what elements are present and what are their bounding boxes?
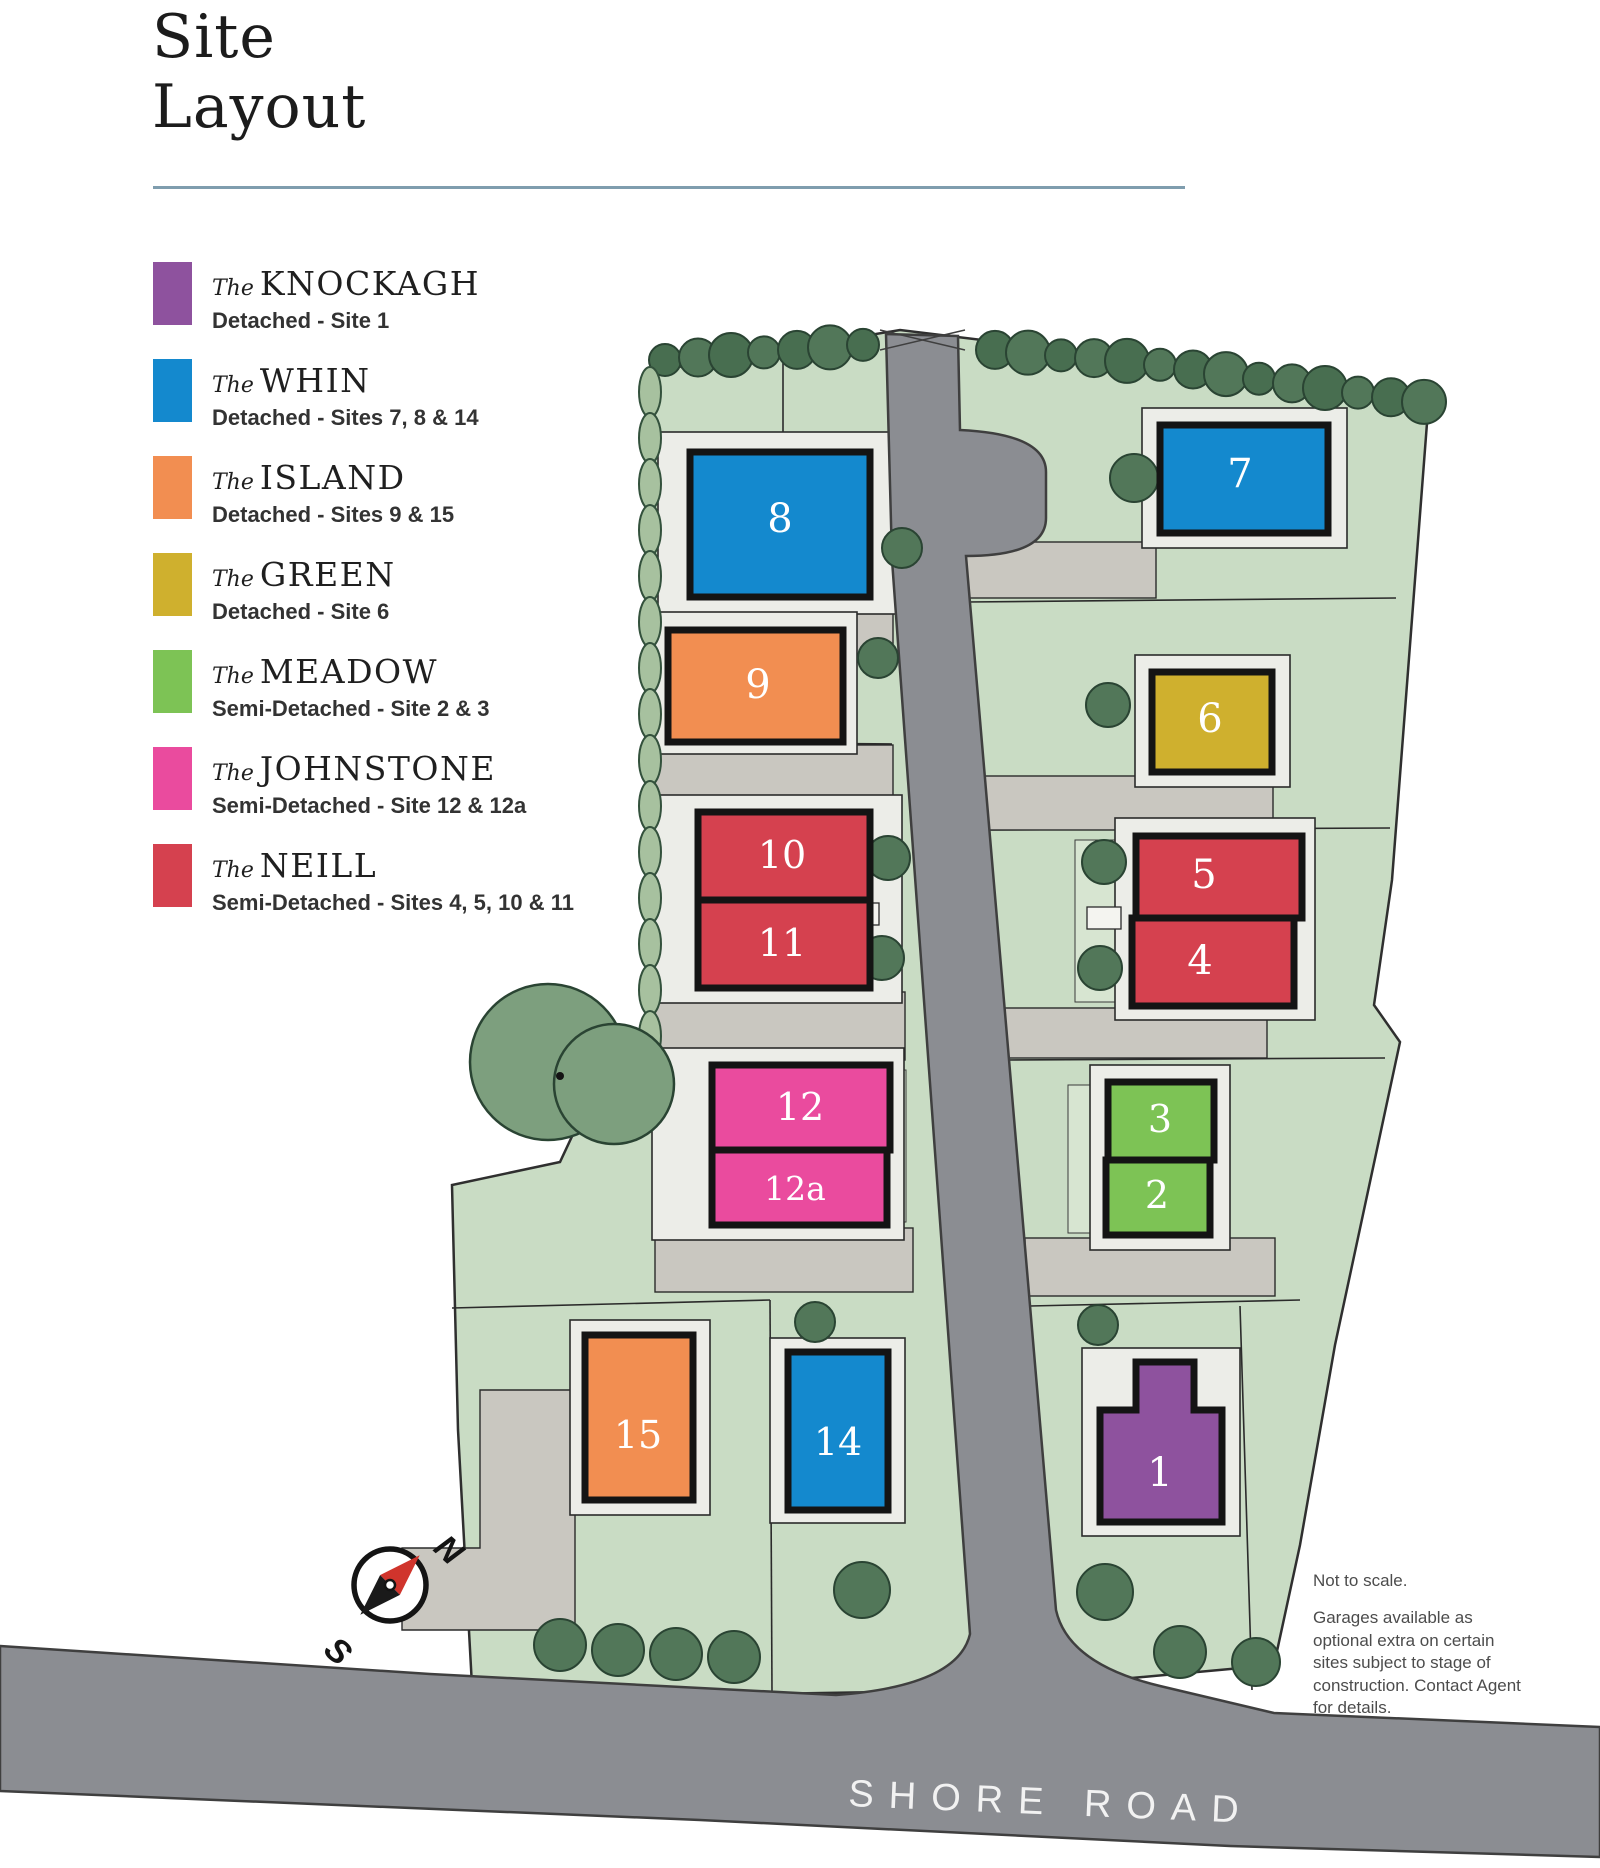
whin-color-swatch — [153, 359, 192, 422]
neill-color-swatch — [153, 844, 192, 907]
hedge-bush — [639, 873, 661, 923]
house-type-sites: Semi-Detached - Site 12 & 12a — [212, 793, 526, 819]
site-number-9: 9 — [745, 662, 770, 708]
tree — [592, 1624, 644, 1676]
hedge-bush — [639, 551, 661, 601]
tree — [1243, 363, 1275, 395]
house-type-name: TheGREEN — [212, 555, 396, 594]
site-number-10: 10 — [758, 833, 806, 877]
site-number-11: 11 — [758, 921, 806, 965]
legend-item-green: TheGREENDetached - Site 6 — [153, 553, 583, 616]
legend: TheKNOCKAGHDetached - Site 1TheWHINDetac… — [153, 262, 583, 941]
not-to-scale-note: Not to scale. — [1313, 1570, 1523, 1592]
tree — [847, 329, 879, 361]
hedge-bush — [639, 459, 661, 509]
legend-item-whin: TheWHINDetached - Sites 7, 8 & 14 — [153, 359, 583, 422]
legend-item-neill: TheNEILLSemi-Detached - Sites 4, 5, 10 &… — [153, 844, 583, 907]
house-site-5 — [1136, 836, 1302, 918]
tree — [795, 1302, 835, 1342]
site-number-3: 3 — [1148, 1097, 1172, 1141]
garage-note: Garages available as optional extra on c… — [1313, 1607, 1523, 1719]
tree — [808, 325, 852, 369]
tree — [1303, 366, 1347, 410]
site-layout-page: 87961011541212a3215141 SHORE ROAD N S Si… — [0, 0, 1600, 1868]
hedge-bush — [639, 505, 661, 555]
house-type-sites: Semi-Detached - Site 2 & 3 — [212, 696, 490, 722]
meadow-color-swatch — [153, 650, 192, 713]
page-title: Site Layout — [152, 2, 452, 142]
house-type-sites: Detached - Site 6 — [212, 599, 396, 625]
site-number-4: 4 — [1187, 938, 1212, 984]
hedge-bush — [639, 965, 661, 1015]
green-color-swatch — [153, 553, 192, 616]
tree — [882, 528, 922, 568]
site-number-14: 14 — [814, 1420, 862, 1464]
house-type-name: TheKNOCKAGH — [212, 264, 480, 303]
tree — [1402, 380, 1446, 424]
hedge-bush — [639, 689, 661, 739]
tree — [1342, 377, 1374, 409]
tree — [1204, 352, 1248, 396]
tree — [1086, 683, 1130, 727]
tree — [1045, 339, 1077, 371]
legend-item-text: TheMEADOWSemi-Detached - Site 2 & 3 — [212, 650, 490, 722]
tree — [709, 333, 753, 377]
notes: Not to scale. Garages available as optio… — [1313, 1570, 1523, 1720]
legend-item-meadow: TheMEADOWSemi-Detached - Site 2 & 3 — [153, 650, 583, 713]
tree — [1006, 331, 1050, 375]
site-number-7: 7 — [1227, 451, 1252, 497]
tree — [650, 1628, 702, 1680]
house-type-name: TheISLAND — [212, 458, 454, 497]
site-number-2: 2 — [1145, 1173, 1169, 1217]
hedge-bush — [639, 735, 661, 785]
site-number-15: 15 — [614, 1413, 662, 1457]
tree — [834, 1562, 890, 1618]
house-type-name: TheWHIN — [212, 361, 479, 400]
site-number-8: 8 — [767, 496, 792, 542]
hedge-bush — [639, 781, 661, 831]
house-type-sites: Detached - Sites 7, 8 & 14 — [212, 405, 479, 431]
hedge-bush — [639, 919, 661, 969]
tree — [708, 1631, 760, 1683]
knockagh-color-swatch — [153, 262, 192, 325]
legend-item-text: TheJOHNSTONESemi-Detached - Site 12 & 12… — [212, 747, 526, 819]
house-type-sites: Detached - Site 1 — [212, 308, 480, 334]
tree — [534, 1619, 586, 1671]
legend-item-text: TheKNOCKAGHDetached - Site 1 — [212, 262, 480, 334]
legend-item-text: TheNEILLSemi-Detached - Sites 4, 5, 10 &… — [212, 844, 574, 916]
site-number-1: 1 — [1147, 1450, 1172, 1496]
island-color-swatch — [153, 456, 192, 519]
legend-item-text: TheWHINDetached - Sites 7, 8 & 14 — [212, 359, 479, 431]
hedge-bush — [639, 597, 661, 647]
legend-item-johnstone: TheJOHNSTONESemi-Detached - Site 12 & 12… — [153, 747, 583, 810]
tree — [1082, 840, 1126, 884]
house-type-name: TheNEILL — [212, 846, 574, 885]
tree — [1078, 1305, 1118, 1345]
hedge-bush — [639, 413, 661, 463]
tree — [1232, 1638, 1280, 1686]
site-number-5: 5 — [1191, 852, 1216, 898]
house-type-name: TheJOHNSTONE — [212, 749, 526, 788]
tree — [748, 336, 780, 368]
legend-item-knockagh: TheKNOCKAGHDetached - Site 1 — [153, 262, 583, 325]
tree — [1105, 339, 1149, 383]
tree — [1078, 946, 1122, 990]
tree — [1110, 454, 1158, 502]
legend-item-text: TheGREENDetached - Site 6 — [212, 553, 396, 625]
site-number-12a: 12a — [764, 1169, 826, 1208]
legend-item-island: TheISLANDDetached - Sites 9 & 15 — [153, 456, 583, 519]
tree — [1154, 1626, 1206, 1678]
house-site-4 — [1132, 918, 1294, 1006]
hedge-bush — [639, 643, 661, 693]
house-type-sites: Detached - Sites 9 & 15 — [212, 502, 454, 528]
house-type-name: TheMEADOW — [212, 652, 490, 691]
site-number-12: 12 — [776, 1085, 824, 1129]
legend-item-text: TheISLANDDetached - Sites 9 & 15 — [212, 456, 454, 528]
hedge-bush — [639, 367, 661, 417]
tree — [1077, 1564, 1133, 1620]
house-type-sites: Semi-Detached - Sites 4, 5, 10 & 11 — [212, 890, 574, 916]
site-number-6: 6 — [1197, 696, 1222, 742]
title-divider — [153, 186, 1185, 189]
hedge-bush — [639, 827, 661, 877]
tree — [858, 638, 898, 678]
tree — [1144, 349, 1176, 381]
johnstone-color-swatch — [153, 747, 192, 810]
